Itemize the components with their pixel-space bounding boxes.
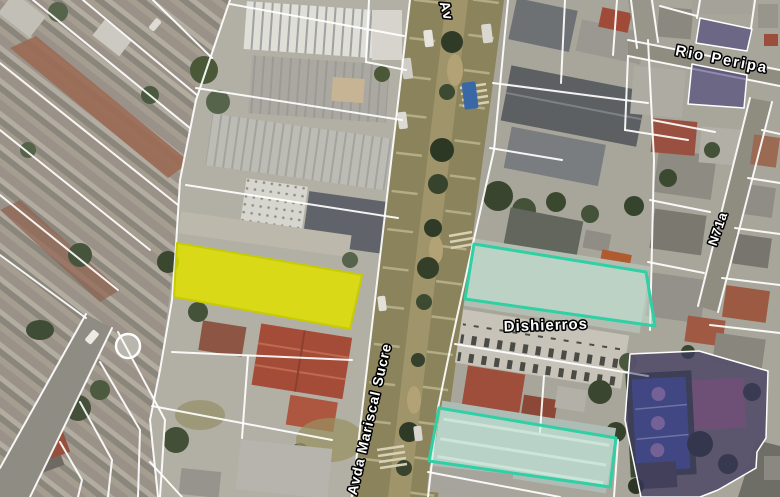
map-canvas[interactable]: AvAvda Mariscal SucreRio PeripaN71aDishi… [0, 0, 780, 497]
place-label-dishierros: Dishierros [503, 316, 588, 336]
map-viewport[interactable]: AvAvda Mariscal SucreRio PeripaN71aDishi… [0, 0, 780, 497]
